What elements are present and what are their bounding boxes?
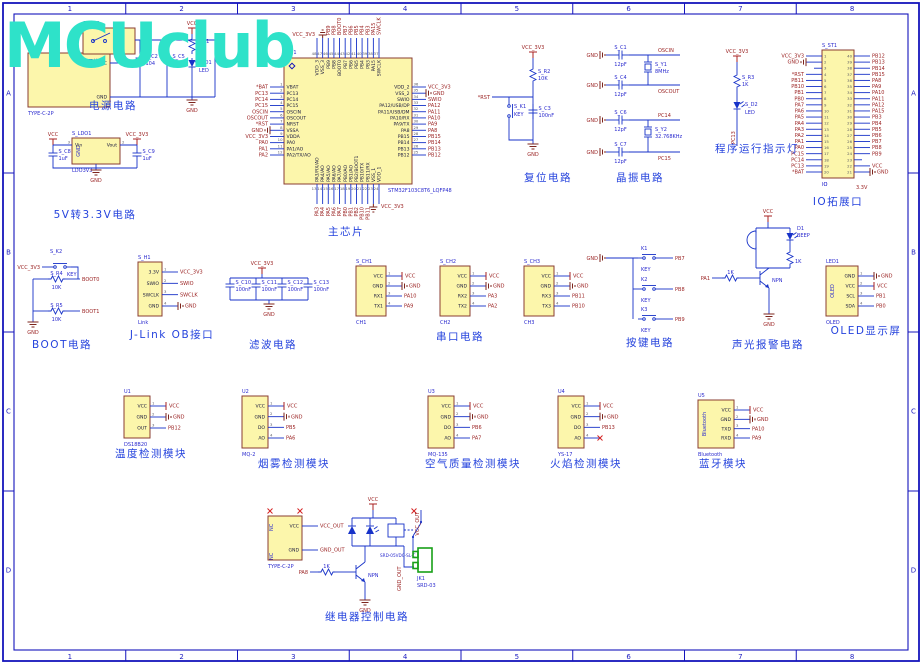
pin-number: 37 <box>374 51 379 56</box>
pin-name: GND <box>540 284 551 290</box>
symbol-npn <box>752 268 769 288</box>
circuit-caption: 滤波电路 <box>249 338 297 351</box>
pin-number: 3 <box>456 422 459 427</box>
net-label: 3.3V <box>856 185 868 191</box>
power-label: GND <box>587 83 599 89</box>
power-label: GND <box>27 330 39 336</box>
symbol-vcc: VCC_3V3 <box>126 132 149 145</box>
net-label: PA11 <box>428 109 440 115</box>
pin-number: 6 <box>280 112 283 117</box>
symbol-xtal: S_Y18MHz <box>644 57 669 77</box>
pin-name: PB13 <box>398 146 410 152</box>
power-label: GND <box>527 152 539 158</box>
symbol-lbl: VCC_3V3 <box>17 265 40 271</box>
net-label: PC14 <box>255 97 268 103</box>
pin-number: 7 <box>280 119 283 124</box>
part-name: TYPE-C-2P <box>267 564 294 570</box>
pin-number: 22 <box>847 163 852 168</box>
net-label: VCC <box>753 408 764 414</box>
symbol-vcc: VCC_3V3 <box>726 49 749 62</box>
symbol-lbl: NPN <box>368 573 379 579</box>
component-U2[interactable]: U2MQ-2VCCVCC1GNDGND2PB5DO3PA6AO4 <box>242 389 303 458</box>
pin-name: PA8 <box>401 128 410 134</box>
component-TYPE-C-2P[interactable]: TYPE-C-2PVCC_OUTVCCGND_OUTGND <box>267 516 346 570</box>
net-label: PA10 <box>428 116 440 122</box>
designator: 1K <box>727 270 734 276</box>
key-button[interactable] <box>49 264 71 269</box>
text-label: SRD-03 <box>417 583 436 589</box>
power-label: VCC <box>48 132 59 138</box>
component-U1[interactable]: U1DS18B20VCCVCC1GNDGND2PB12OUT3 <box>124 389 185 448</box>
shape <box>413 563 418 569</box>
net-label: PB15 <box>872 72 885 78</box>
net-label: PB0 <box>876 304 886 310</box>
symbol-buz <box>747 231 756 249</box>
pin-name: PA10/RX <box>390 116 409 122</box>
designator: S_Y1 <box>655 62 667 68</box>
key-button[interactable] <box>638 255 660 260</box>
net-label: GND <box>493 284 505 290</box>
designator: S_LDO1 <box>72 131 91 137</box>
pin-name: PA2/TX/AO <box>287 153 312 159</box>
net-label: VCC_OUT <box>320 524 344 530</box>
symbol-gnd: GND <box>263 304 275 318</box>
net-label: PB9 <box>675 317 685 323</box>
pin-name: PC13 <box>287 91 299 97</box>
pin-number: 39 <box>362 51 367 56</box>
pin-name: AO <box>444 436 451 442</box>
symbol-lbl: NPN <box>772 278 783 284</box>
symbol-cap: S_C12100nF <box>278 278 304 293</box>
designator: S_R5 <box>50 303 62 309</box>
designator: S_CH2 <box>440 259 456 265</box>
net-label: PA1 <box>701 276 710 282</box>
shape <box>418 548 432 572</box>
net-label: PA1 <box>259 146 268 152</box>
circuit-caption: 温度检测模块 <box>115 447 187 460</box>
pin-number: 1 <box>388 271 391 276</box>
net-label: PA3 <box>795 127 804 133</box>
designator: S_CH1 <box>356 259 372 265</box>
pin-number: 17 <box>824 151 829 156</box>
designator: S_C4 <box>614 75 626 81</box>
net-label: PA4 <box>795 121 804 127</box>
zone-number: 6 <box>626 5 631 13</box>
pin-name: VCC <box>441 404 451 410</box>
pin-number: 1 <box>472 271 475 276</box>
net-label: PB12 <box>168 426 181 432</box>
pin-number: 1 <box>736 405 739 410</box>
net-label: PB11 <box>365 207 371 220</box>
shape <box>645 129 651 135</box>
symbol-key[interactable]: S_K1KEY <box>508 100 526 122</box>
designator: S_C12 <box>288 280 304 286</box>
pin-number: 2 <box>556 281 559 286</box>
net-label: VCC_3V3 <box>292 32 315 38</box>
net-label: GND <box>607 414 619 420</box>
net-label: PB15 <box>428 134 441 140</box>
zone-number: 4 <box>403 5 408 13</box>
component-LED1[interactable]: LED1OLEDOLEDGNDGND1VCCVCC2PB1SCL3PB0SDA4 <box>826 259 893 326</box>
pin-number: 35 <box>847 84 852 89</box>
shape <box>645 64 651 70</box>
wire <box>734 72 740 90</box>
text-label: LED <box>745 110 755 116</box>
pin-number: 5 <box>280 106 283 111</box>
pin-name: PA6/AO <box>332 165 338 182</box>
symbol-gndh: GND <box>587 51 605 59</box>
component-S_CH1[interactable]: S_CH1CH1VCCVCC1GNDGND2PA10RX13PA9TX14 <box>356 259 421 326</box>
component-U3[interactable]: U3MQ-135VCCVCC1GNDGND2PB6DO3PA7AO4 <box>428 389 489 458</box>
net-label: OSCIN <box>658 48 674 54</box>
pin-name: GND <box>844 274 855 280</box>
net-label: PB0 <box>794 96 804 102</box>
designator: U5 <box>698 393 705 399</box>
pin-name: TX3 <box>541 304 551 310</box>
pin-name: PA11/USB/DM <box>378 109 410 115</box>
pin-number: 2 <box>280 88 283 93</box>
symbol-gndh: GND <box>587 148 605 156</box>
symbol-lbl: GND_OUT <box>397 565 403 591</box>
part-name: LDO3V3 <box>72 168 92 174</box>
designator: S_C6 <box>614 110 626 116</box>
net-label: OSCOUT <box>247 116 269 122</box>
circuit-caption: 5V转3.3V电路 <box>54 208 137 221</box>
net-label: GND <box>185 304 197 310</box>
value: 10K <box>52 317 62 323</box>
net-label: GND <box>577 284 589 290</box>
pin-name: PB5 <box>354 60 360 69</box>
pin-name: OUT <box>137 426 147 432</box>
power-label: GND <box>763 322 775 328</box>
pin-name: PB1/AO <box>348 165 354 182</box>
pin-name: VCC <box>457 274 467 280</box>
net-label: GND <box>291 414 303 420</box>
text-label: NC <box>269 523 275 531</box>
pin-number: 8 <box>280 125 283 130</box>
designator: S_C11 <box>262 280 278 286</box>
designator: S_D2 <box>745 102 758 108</box>
pin-number: 3 <box>164 289 167 294</box>
pin-name: DO <box>444 425 452 431</box>
pin-number: 40 <box>847 54 852 59</box>
pin-number: 23 <box>847 157 852 162</box>
net-label: PA10 <box>872 90 884 96</box>
wire <box>787 249 793 267</box>
wire <box>509 122 533 140</box>
pin-number: 44 <box>334 51 339 56</box>
symbol-key[interactable]: K1KEY <box>638 246 660 273</box>
pin-number: 18 <box>340 186 345 191</box>
key-button[interactable] <box>508 100 513 122</box>
pin-number: 4 <box>388 301 391 306</box>
shape <box>388 524 404 537</box>
pin-name: 3.3V <box>149 270 160 276</box>
power-label: VCC <box>763 209 774 215</box>
symbol-lbl: PB8 <box>675 287 685 293</box>
pin-number: 3 <box>270 422 273 427</box>
pin-number: 17 <box>334 186 339 191</box>
net-label: PB14 <box>872 66 885 72</box>
pin-number: 2 <box>270 411 273 416</box>
net-label: VCC <box>877 284 888 290</box>
net-label: PA8 <box>428 128 437 134</box>
pin-name: VCC <box>721 408 731 414</box>
pin-number: 2 <box>388 281 391 286</box>
wire <box>356 562 365 569</box>
pin-number: 28 <box>414 131 419 136</box>
value: 12pF <box>614 62 627 68</box>
pin-number: 37 <box>847 72 852 77</box>
net-label: GND <box>877 170 889 176</box>
pin-number: 2 <box>122 140 125 145</box>
symbol-cap: S_C13100nF <box>304 278 330 293</box>
net-label: GND <box>409 284 421 290</box>
pin-number: 12 <box>824 121 829 126</box>
net-label: GND <box>477 414 489 420</box>
component-S_CH2[interactable]: S_CH2CH2VCCVCC1GNDGND2PA3RX23PA2TX24 <box>440 259 505 326</box>
symbol-vcc: VCC <box>763 209 774 222</box>
net-label: VCC_3V3 <box>781 54 804 60</box>
value: 1uF <box>59 156 68 162</box>
wire <box>374 527 378 530</box>
circuit-caption: 按键电路 <box>626 336 674 349</box>
symbol-lbl: NC <box>269 552 275 560</box>
net-label: *BAT <box>256 85 269 91</box>
designator: S_C9 <box>143 149 155 155</box>
net-label: VCC <box>573 274 584 280</box>
component-S_CH3[interactable]: S_CH3CH3VCCVCC1GNDGND2PB11RX33PB10TX34 <box>524 259 589 326</box>
symbol-cap: S_C712pF <box>612 142 629 165</box>
symbol-gnd: GND <box>186 100 198 114</box>
component-U5[interactable]: U5BluetoothBluetoothVCCVCC1GNDGND2PA10TX… <box>698 393 769 458</box>
net-label: VCC_3V3 <box>180 270 203 276</box>
pin-number: 29 <box>414 125 419 130</box>
designator: S_R4 <box>50 271 62 277</box>
wire <box>376 530 380 532</box>
relay-output-connector[interactable] <box>413 548 432 572</box>
pin-number: 3 <box>68 140 71 145</box>
symbol-jk[interactable] <box>413 548 432 572</box>
component-U4[interactable]: U4YS-17VCCVCC1GNDGND2PB13DO3AO4 <box>557 389 619 458</box>
pin-name: TXD <box>721 426 732 432</box>
net-label: *RST <box>792 72 805 78</box>
zone-number: 4 <box>403 653 408 661</box>
net-label: VCC <box>169 404 180 410</box>
net-label: VCC <box>405 274 416 280</box>
power-label: VCC_3V3 <box>726 49 749 55</box>
net-label: PA8 <box>872 78 881 84</box>
pin-name: VCC <box>373 274 383 280</box>
pin-number: 1 <box>280 82 283 87</box>
pin-number: 2 <box>164 278 167 283</box>
zone-number: 7 <box>738 5 742 13</box>
net-label: PC15 <box>658 156 671 162</box>
net-label: PB1 <box>794 90 804 96</box>
net-label: BOOT0 <box>82 277 99 283</box>
circuit-caption: 串口电路 <box>436 330 484 343</box>
symbol-lbl: BOOT0 <box>82 277 99 283</box>
pin-number: 2 <box>456 411 459 416</box>
value: KEY <box>67 272 77 278</box>
pin-name: TX1 <box>373 304 383 310</box>
pin-name: VCC <box>137 404 147 410</box>
pin-name: PC14 <box>287 97 299 103</box>
value: KEY <box>641 328 651 334</box>
symbol-lbl: PC15 <box>658 156 671 162</box>
pin-number: 19 <box>824 163 829 168</box>
symbol-gndh: GND <box>587 116 605 124</box>
component-S_ST1[interactable]: S_ST1IOVCC_3V31GND23*RST4PB115PB106PB17P… <box>781 43 888 188</box>
pin-number: 10 <box>278 137 283 142</box>
designator: U2 <box>242 389 249 395</box>
pin-number: 32 <box>414 106 419 111</box>
designator: U4 <box>558 389 565 395</box>
pin-number: 2 <box>736 414 739 419</box>
text-label: IO <box>822 182 827 188</box>
net-label: PA9 <box>872 84 881 90</box>
symbol-res: S_R210K <box>530 66 550 84</box>
net-label: PA12 <box>428 103 440 109</box>
net-label: VCC <box>473 404 484 410</box>
pin-name: VSSA <box>287 128 300 134</box>
symbol-vcc: VCC_3V3 <box>522 45 545 58</box>
component-S_H1[interactable]: S_H1LinkVCC_3V33.3V1SWIOSWIO2SWCLKSWCLK3… <box>138 255 203 326</box>
pin-number: 18 <box>824 157 829 162</box>
net-label: GND_OUT <box>397 565 403 591</box>
pin-number: 11 <box>824 115 829 120</box>
pin-number: 30 <box>847 115 852 120</box>
symbol-xm <box>268 509 273 514</box>
pin-number: 4 <box>860 301 863 306</box>
pin-number: 35 <box>414 88 419 93</box>
pin-name: SWIO <box>397 97 410 103</box>
symbol-key[interactable]: K2KEY <box>638 277 660 304</box>
symbol-lbl: SRD-05VDC-SL-C <box>380 553 416 558</box>
net-label: PA7 <box>795 102 804 108</box>
circuit-caption: 继电器控制电路 <box>325 610 409 623</box>
circuit-caption: 蓝牙模块 <box>699 458 747 470</box>
symbol-lbl: LED <box>745 110 755 116</box>
pin-number: 36 <box>414 82 419 87</box>
pin-name: GND <box>254 414 265 420</box>
pin-number: 4 <box>736 433 739 438</box>
pin-name: PA9/TX <box>393 122 409 128</box>
key-button[interactable] <box>638 286 660 291</box>
pin-number: 13 <box>312 186 317 191</box>
circuit-caption: OLED显示屏 <box>831 325 902 337</box>
pin-name: PB15 <box>398 134 410 140</box>
pin-number: 20 <box>351 186 356 191</box>
net-label: PB13 <box>602 425 615 431</box>
pin-number: 32 <box>847 102 852 107</box>
pin-name: VCC <box>255 404 265 410</box>
net-label: VCC <box>603 404 614 410</box>
circuit-caption: 空气质量检测模块 <box>425 457 521 470</box>
pin-number: 19 <box>345 186 350 191</box>
power-label: GND <box>587 53 599 59</box>
pin-name: SDA <box>845 304 855 310</box>
value: 10K <box>538 76 548 82</box>
circuit-caption: 主芯片 <box>328 225 364 238</box>
pin-name: PB7 <box>343 60 349 69</box>
net-label: PB3 <box>872 115 882 121</box>
pin-name: VDDA <box>287 134 301 140</box>
pin-number: 13 <box>824 127 829 132</box>
pin-number: 4 <box>164 301 167 306</box>
circuit-caption: J-Link OB接口 <box>129 328 214 341</box>
designator: U3 <box>428 389 435 395</box>
net-label: PA6 <box>286 436 295 442</box>
zone-number: 3 <box>291 653 295 661</box>
part-name: Link <box>138 320 148 326</box>
circuit-caption: 火焰检测模块 <box>550 457 622 470</box>
pin-name: RX1 <box>374 294 383 300</box>
circuit-caption: 复位电路 <box>524 171 572 184</box>
circuit-caption: 声光报警电路 <box>732 338 804 351</box>
designator: S_R2 <box>538 69 550 75</box>
pin-number: 48 <box>312 51 317 56</box>
pin-number: 25 <box>414 150 419 155</box>
net-label: GND <box>252 128 264 134</box>
part-vertical-name: Bluetooth <box>702 412 708 436</box>
pin-name: TX2 <box>457 304 467 310</box>
pin-name: PB11/RX <box>365 162 371 182</box>
zone-letter: C <box>6 408 11 416</box>
net-label: PC14 <box>791 157 804 163</box>
value: KEY <box>641 267 651 273</box>
pin-number: 21 <box>847 170 852 175</box>
pin-name: PB3 <box>365 60 371 69</box>
symbol-lbl: BOOT1 <box>82 309 99 315</box>
pin-number: 29 <box>847 121 852 126</box>
net-label: GND_OUT <box>320 548 346 554</box>
pin-number: 33 <box>414 100 419 105</box>
symbol-gnd: GND <box>527 144 539 158</box>
part-name: TYPE-C-2P <box>27 111 54 117</box>
zone-letter: D <box>6 567 11 575</box>
symbol-lbl: JK1 <box>416 576 425 582</box>
symbol-cap: S_C10100nF <box>226 278 252 293</box>
pin-name: VDD_1 <box>377 166 383 182</box>
pin-number: 14 <box>824 133 829 138</box>
designator: S_C7 <box>614 142 626 148</box>
pin-number: 3 <box>280 94 283 99</box>
pin-number: 4 <box>586 433 589 438</box>
designator: K1 <box>641 246 647 252</box>
pin-name: GND <box>720 417 731 423</box>
pin-name: PB2/BOOT1 <box>354 155 360 182</box>
pin-number: 11 <box>278 143 283 148</box>
pin-number: 24 <box>374 186 379 191</box>
watermark: MCUclub <box>4 12 294 80</box>
pin-name: PB12 <box>398 153 410 159</box>
net-label: OSCIN <box>252 109 268 115</box>
pin-number: 22 <box>362 186 367 191</box>
symbol-lbl: OSCOUT <box>658 89 680 95</box>
pin-number: 1 <box>164 267 167 272</box>
pin-number: 24 <box>847 151 852 156</box>
symbol-key[interactable]: K3KEY <box>638 307 660 334</box>
pin-number: 38 <box>368 51 373 56</box>
key-button[interactable] <box>638 316 660 321</box>
net-label: PB11 <box>572 294 585 300</box>
net-label: PC14 <box>658 113 671 119</box>
symbol-res: 1K <box>318 564 335 575</box>
designator: U1 <box>124 389 131 395</box>
pin-number: 21 <box>357 186 362 191</box>
pin-name: PA4/AO <box>320 165 326 182</box>
